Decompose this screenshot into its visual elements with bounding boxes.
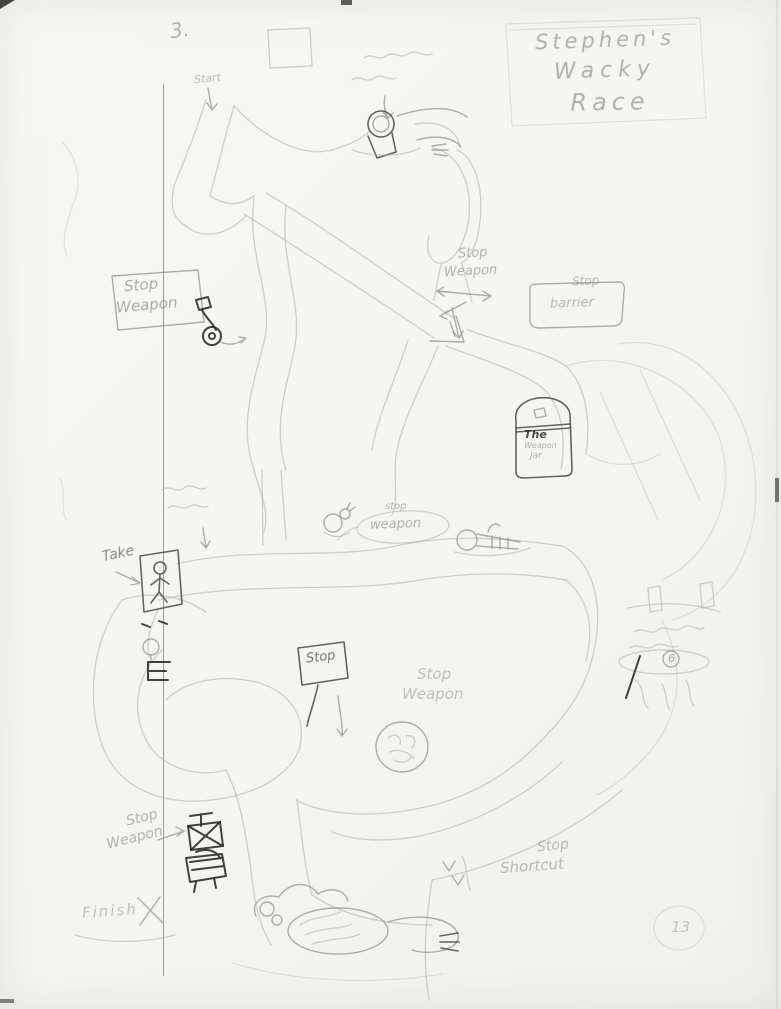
snail-doodle bbox=[324, 503, 355, 537]
top-square-sketch bbox=[268, 28, 312, 68]
dark-machine-sketch bbox=[186, 813, 226, 892]
bubble-line2: weapon bbox=[370, 516, 422, 533]
title-line-2: Wacky bbox=[535, 56, 676, 86]
lying-racer-sketch bbox=[455, 524, 530, 555]
top-racer-sketch bbox=[352, 109, 467, 158]
title-line-3: Race bbox=[545, 87, 675, 117]
stop-weapon-top-line2: Weapon bbox=[444, 263, 498, 281]
ruled-lines bbox=[164, 0, 780, 1009]
scanner-marks bbox=[0, 0, 352, 1003]
podium-number: 6 bbox=[668, 652, 675, 665]
scanned-pencil-race-map: 3. Stephen's Wacky Race Start Stop Weapo… bbox=[0, 0, 781, 1009]
page-number: 13 bbox=[671, 918, 690, 936]
stop-weapon-mid-line2: Weapon bbox=[402, 685, 463, 703]
stop-weapon-mid-line1: Stop bbox=[417, 665, 451, 683]
weapon-jar-line1: The bbox=[524, 428, 547, 441]
corner-number: 3. bbox=[168, 17, 190, 43]
beetle-car-sketch bbox=[255, 885, 459, 954]
scribble-notes bbox=[162, 52, 704, 648]
weapon-jar-line2: Weapon bbox=[524, 441, 557, 450]
weapon-jar-line3: Jar bbox=[530, 451, 542, 461]
round-token-sketch bbox=[376, 722, 428, 772]
start-label: Start bbox=[193, 71, 221, 87]
bubble-line1: stop bbox=[385, 501, 407, 512]
bridge-sketch bbox=[244, 193, 464, 342]
stop-weapon-left-line1: Stop bbox=[123, 275, 159, 296]
stop-barrier-line2: barrier bbox=[550, 295, 594, 312]
stop-weapon-top-line1: Stop bbox=[458, 245, 488, 262]
take-card-sketch bbox=[140, 550, 182, 612]
stop-shortcut-line1: Stop bbox=[536, 836, 569, 855]
stop-barrier-line1: Stop bbox=[572, 274, 600, 289]
race-track-sketch bbox=[60, 100, 756, 1000]
